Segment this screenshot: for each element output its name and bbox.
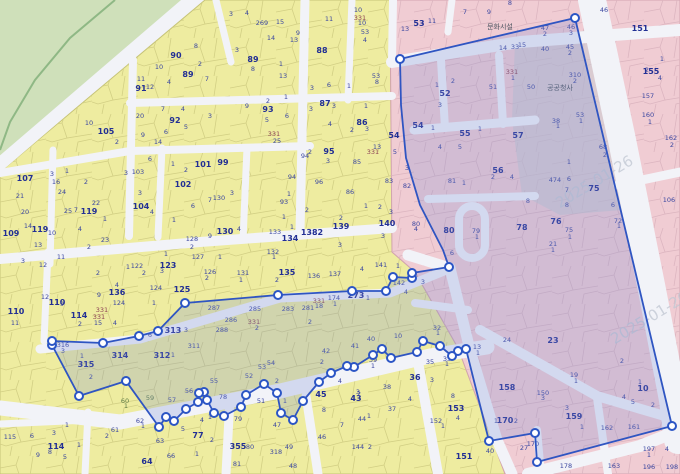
parcel-label: 134 — [282, 234, 299, 243]
selection-vertex[interactable] — [348, 287, 356, 295]
parcel-label: 2 — [205, 274, 209, 282]
parcel-label: 6 — [30, 432, 34, 440]
selection-vertex[interactable] — [445, 263, 453, 271]
parcel-label: 1 — [364, 202, 368, 210]
parcel-label: 1 — [152, 299, 156, 307]
selection-vertex[interactable] — [419, 337, 427, 345]
parcel-label: 10 — [85, 119, 93, 127]
parcel-label: 318 — [270, 448, 282, 456]
selection-vertex[interactable] — [315, 378, 323, 386]
parcel-label: 4 — [456, 414, 460, 422]
parcel-label: 1 — [172, 216, 176, 224]
parcel-label: 355 — [230, 442, 247, 451]
parcel-label: 4 — [237, 225, 241, 233]
selection-vertex[interactable] — [181, 299, 189, 307]
parcel-label: 1 — [164, 250, 168, 258]
parcel-label: 3 — [229, 10, 233, 18]
parcel-label: 2 — [275, 276, 279, 284]
parcel-label: 93 — [280, 198, 288, 206]
parcel-label: 10 — [354, 6, 362, 14]
parcel-label: 13 — [279, 72, 287, 80]
parcel-label: 104 — [133, 202, 150, 211]
selection-vertex[interactable] — [210, 409, 218, 417]
selection-vertex[interactable] — [155, 423, 163, 431]
parcel-label: 44 — [358, 415, 366, 423]
selection-vertex[interactable] — [260, 380, 268, 388]
parcel-label: 14 — [267, 34, 275, 42]
road — [300, 0, 305, 232]
parcel-label: 125 — [174, 285, 191, 294]
selection-vertex[interactable] — [170, 417, 178, 425]
parcel-label: 79 — [234, 415, 242, 423]
parcel-label: 15 — [276, 18, 284, 26]
parcel-label: 151 — [456, 452, 473, 461]
parcel-label: 2 — [308, 148, 312, 156]
parcel-label: 3 — [21, 257, 25, 265]
parcel-label: 1 — [396, 262, 400, 270]
parcel-label: 8 — [451, 392, 455, 400]
selection-vertex[interactable] — [413, 348, 421, 356]
selection-vertex[interactable] — [378, 345, 386, 353]
parcel-label: 1 — [648, 118, 652, 126]
parcel-label: 80 — [246, 443, 254, 451]
parcel-label: 163 — [608, 462, 620, 470]
parcel-label: 269 — [256, 19, 268, 27]
parcel-label: 88 — [316, 46, 328, 55]
parcel-label: 7 — [208, 196, 212, 204]
selection-vertex[interactable] — [485, 437, 493, 445]
parcel-label: 2 — [105, 432, 109, 440]
parcel-label: 128 — [186, 235, 198, 243]
parcel-label: 4 — [408, 395, 412, 403]
parcel-label: 109 — [3, 229, 20, 238]
selection-vertex[interactable] — [122, 377, 130, 385]
parcel-label: 13 — [290, 36, 298, 44]
parcel-label: 1 — [371, 362, 375, 370]
parcel-label: 96 — [315, 178, 323, 186]
parcel-label: 2 — [368, 443, 372, 451]
parcel-label: 46 — [600, 6, 608, 14]
parcel-label: 3 — [365, 125, 369, 133]
parcel-label: 53 — [413, 19, 424, 28]
map-svg[interactable]: 2025-01-262025-01-26 9089919210510281112… — [0, 0, 680, 474]
parcel-label: 3 — [160, 267, 164, 275]
parcel-label: 1 — [287, 190, 291, 198]
parcel-label: 92 — [169, 116, 180, 125]
parcel-label: 1 — [660, 55, 664, 63]
parcel-label: 11 — [428, 17, 436, 25]
parcel-label: 10 — [358, 19, 366, 27]
selection-vertex[interactable] — [533, 458, 541, 466]
selection-vertex[interactable] — [387, 354, 395, 362]
parcel-label: 2 — [645, 66, 649, 74]
parcel-label: 94 — [288, 173, 296, 181]
parcel-label: 9 — [60, 300, 64, 308]
parcel-label: 135 — [279, 268, 296, 277]
parcel-label: 2 — [305, 206, 309, 214]
parcel-label: 5 — [184, 123, 188, 131]
parcel-label: 49 — [285, 443, 293, 451]
parcel-label: 136 — [109, 288, 126, 297]
parcel-label: 9 — [208, 232, 212, 240]
selection-vertex[interactable] — [668, 422, 676, 430]
parcel-label: 8 — [194, 42, 198, 50]
parcel-label: 139 — [333, 222, 350, 231]
parcel-label: 25 — [64, 207, 72, 215]
parcel-label: 2 — [184, 166, 188, 174]
parcel-label: 46 — [318, 433, 326, 441]
parcel-label: 1 — [65, 167, 69, 175]
parcel-label: 89 — [182, 70, 194, 79]
parcel-label: 4 — [115, 281, 119, 289]
parcel-label: 89 — [247, 55, 259, 64]
road — [158, 148, 162, 237]
parcel-label: 99 — [217, 158, 229, 167]
parcel-label: 4 — [113, 319, 117, 327]
parcel-label: 133 — [269, 228, 281, 236]
parcel-label: 1382 — [301, 228, 323, 237]
parcel-label: 3 — [230, 189, 234, 197]
parcel-label: 1 — [290, 223, 294, 231]
parcel-label: 3 — [381, 232, 385, 240]
parcel-label: 1 — [218, 253, 222, 261]
parcel-label: 4 — [200, 416, 204, 424]
selection-vertex[interactable] — [220, 412, 228, 420]
selection-vertex[interactable] — [408, 269, 416, 277]
selection-vertex[interactable] — [369, 351, 377, 359]
parcel-label: 95 — [323, 147, 335, 156]
parcel-label: 2 — [84, 178, 88, 186]
parcel-label: 1 — [195, 450, 199, 458]
parcel-label: 127 — [192, 253, 204, 261]
selection-vertex[interactable] — [135, 332, 143, 340]
road — [243, 148, 247, 240]
parcel-label: 1 — [171, 160, 175, 168]
parcel-label: 35 — [426, 358, 434, 366]
selection-vertex[interactable] — [274, 291, 282, 299]
parcel-label: 77 — [192, 431, 203, 440]
selection-vertex[interactable] — [382, 287, 390, 295]
parcel-label: 1 — [367, 412, 371, 420]
parcel-label: 8 — [48, 448, 52, 456]
parcel-label: 21 — [16, 192, 24, 200]
parcel-label: 6 — [164, 128, 168, 136]
parcel-label: 85 — [353, 158, 361, 166]
parcel-label: 3 — [208, 112, 212, 120]
parcel-label: 1 — [77, 441, 81, 449]
parcel-label: 5 — [63, 453, 67, 461]
parcel-label: 2 — [378, 203, 382, 211]
selection-vertex[interactable] — [273, 389, 281, 397]
parcel-label: 107 — [17, 174, 34, 183]
selection-vertex[interactable] — [242, 391, 250, 399]
parcel-label: 1 — [65, 421, 69, 429]
selection-vertex[interactable] — [389, 273, 397, 281]
selection-vertex[interactable] — [327, 369, 335, 377]
selection-vertex[interactable] — [75, 392, 83, 400]
parcel-label: 1 — [364, 102, 368, 110]
parcel-label: 11 — [325, 15, 333, 23]
selection-vertex[interactable] — [203, 396, 211, 404]
selection-vertex[interactable] — [571, 14, 579, 22]
parcel-label: 1 — [272, 253, 276, 261]
parcel-label: 4 — [167, 78, 171, 86]
parcel-label: 124 — [150, 284, 162, 292]
selection-vertex[interactable] — [162, 413, 170, 421]
parcel-label: 140 — [379, 219, 396, 228]
parcel-label: 7 — [205, 75, 209, 83]
parcel-label: 16 — [52, 178, 60, 186]
parcel-label: 2 — [266, 97, 270, 105]
parcel-label: 114 — [71, 311, 88, 320]
facility-label: 문화시설 — [487, 23, 513, 31]
parcel-label: 2 — [198, 60, 202, 68]
parcel-label: 4 — [338, 377, 342, 385]
parcel-label: 141 — [375, 261, 387, 269]
parcel-label: 3 — [52, 429, 56, 437]
parcel-label: 14 — [154, 138, 162, 146]
road — [392, 0, 393, 62]
parcel-label: 5 — [181, 425, 185, 433]
selection-vertex[interactable] — [182, 405, 190, 413]
parcel-label: 1 — [124, 402, 128, 410]
parcel-label: 12 — [39, 261, 47, 269]
parcel-label: 20 — [21, 208, 29, 216]
parcel-label: 1 — [284, 93, 288, 101]
selection-vertex[interactable] — [343, 362, 351, 370]
selection-vertex[interactable] — [277, 409, 285, 417]
parcel-label: 3 — [138, 189, 142, 197]
parcel-label: 3 — [235, 46, 239, 54]
parcel-label: 4 — [665, 445, 669, 453]
parcel-label: 115 — [4, 433, 16, 441]
parcel-label: 3 — [430, 376, 434, 384]
parcel-label: 53 — [361, 28, 369, 36]
parcel-label: 9 — [487, 8, 491, 16]
parcel-label: 36 — [409, 373, 421, 382]
parcel-label: 90 — [170, 51, 182, 60]
parcel-label: 2 — [339, 214, 343, 222]
selection-vertex[interactable] — [154, 327, 162, 335]
selection-vertex[interactable] — [99, 339, 107, 347]
selection-vertex[interactable] — [531, 429, 539, 437]
parcel-label: 8 — [322, 406, 326, 414]
parcel-label: 2 — [115, 138, 119, 146]
parcel-label: 130 — [213, 194, 225, 202]
parcel-label: 23 — [101, 236, 109, 244]
selection-vertex[interactable] — [289, 416, 297, 424]
selection-vertex[interactable] — [396, 55, 404, 63]
parcel-label: 61 — [111, 426, 119, 434]
selection-vertex[interactable] — [462, 345, 470, 353]
parcel-label: 110 — [8, 307, 25, 316]
parcel-label: 7 — [74, 206, 78, 214]
parcel-label: 47 — [273, 421, 281, 429]
parcel-label: 119 — [81, 207, 98, 216]
parcel-label: 7 — [340, 421, 344, 429]
parcel-label: 3 — [389, 208, 393, 216]
parcel-label: 196 — [643, 463, 655, 471]
parcel-label: 24 — [58, 188, 66, 196]
parcel-label: 3 — [310, 84, 314, 92]
parcel-label: 157 — [642, 92, 654, 100]
parcel-label: 4 — [328, 120, 332, 128]
parcel-label: 40 — [486, 447, 494, 455]
selection-vertex[interactable] — [299, 397, 307, 405]
parcel-label: 54 — [388, 131, 400, 140]
parcel-label: 63 — [156, 437, 164, 445]
parcel-label: 8 — [375, 78, 379, 86]
parcel-label: 1 — [239, 276, 243, 284]
parcel-label: 4 — [181, 105, 185, 113]
parcel-label: 86 — [346, 188, 354, 196]
parcel-label: 4 — [150, 208, 154, 216]
parcel-label: 3 — [356, 388, 360, 396]
parcel-label: 12 — [146, 83, 154, 91]
parcel-label: 10 — [48, 229, 56, 237]
parcel-label: 1 — [647, 451, 651, 459]
parcel-label: 4 — [414, 225, 418, 233]
selection-vertex[interactable] — [436, 342, 444, 350]
parcel-label: 3 — [309, 105, 313, 113]
parcel-label: 103 — [132, 168, 144, 176]
parcel-label: 6 — [327, 81, 331, 89]
parcel-label: 51 — [257, 397, 265, 405]
parcel-label: 25 — [273, 137, 281, 145]
selection-vertex[interactable] — [194, 398, 202, 406]
parcel-label: 130 — [217, 227, 234, 236]
parcel-label: 9 — [245, 102, 249, 110]
parcel-label: 82 — [403, 182, 411, 190]
parcel-label: 5 — [265, 116, 269, 124]
parcel-label: 198 — [666, 463, 678, 471]
parcel-label: 7 — [161, 105, 165, 113]
parcel-label: 106 — [663, 196, 675, 204]
parcel-label: 45 — [315, 390, 327, 399]
parcel-label: 2 — [78, 320, 82, 328]
parcel-label: 10 — [155, 63, 163, 71]
parcel-label: 66 — [167, 452, 175, 460]
parcel-label: 1 — [347, 82, 351, 90]
parcel-label: 2 — [87, 243, 91, 251]
parcel-label: 1 — [441, 422, 445, 430]
parcel-label: 6 — [148, 155, 152, 163]
parcel-label: 153 — [448, 404, 465, 413]
parcel-label: 87 — [319, 99, 330, 108]
parcel-label: 2 — [96, 269, 100, 277]
parcel-label: 8 — [251, 65, 255, 73]
parcel-label: 5 — [393, 148, 397, 156]
parcel-label: 144 — [352, 443, 364, 451]
parcel-label: 7 — [463, 8, 467, 16]
parcel-label: 3 — [50, 170, 54, 178]
parcel-label: 1 — [282, 213, 286, 221]
parcel-label: 1 — [103, 215, 107, 223]
cadastral-map-view[interactable]: 2025-01-262025-01-26 9089919210510281112… — [0, 0, 680, 474]
parcel-label: 4 — [363, 36, 367, 44]
parcel-label: 11 — [137, 75, 145, 83]
parcel-label: 38 — [383, 383, 391, 391]
parcel-label: 6 — [285, 112, 289, 120]
parcel-label: 105 — [98, 127, 115, 136]
parcel-label: 8 — [508, 0, 512, 7]
parcel-label: 124 — [113, 299, 125, 307]
parcel-label: 93 — [262, 105, 273, 114]
parcel-label: 1 — [445, 360, 449, 368]
selection-vertex[interactable] — [237, 403, 245, 411]
parcel-label: 13 — [373, 143, 381, 151]
selection-vertex[interactable] — [195, 389, 203, 397]
parcel-label: 2 — [142, 269, 146, 277]
parcel-label: 3 — [124, 169, 128, 177]
parcel-label: 101 — [195, 160, 212, 169]
parcel-label: 4 — [360, 265, 364, 273]
parcel-label: 151 — [632, 24, 649, 33]
parcel-label: 4 — [78, 225, 82, 233]
parcel-label: 9 — [141, 131, 145, 139]
parcel-label: 2 — [350, 126, 354, 134]
parcel-label: 15 — [94, 319, 102, 327]
parcel-label: 2 — [190, 243, 194, 251]
parcel-label: 64 — [141, 457, 153, 466]
selection-vertex[interactable] — [48, 337, 56, 345]
parcel-label: 13 — [401, 25, 409, 33]
road — [50, 150, 53, 264]
parcel-label: 37 — [388, 405, 396, 413]
parcel-label: 22 — [92, 199, 100, 207]
parcel-label: 11 — [11, 319, 19, 327]
parcel-label: 13 — [34, 241, 42, 249]
parcel-label: 83 — [385, 177, 393, 185]
parcel-label: 1 — [126, 263, 130, 271]
parcel-label: 9 — [36, 451, 40, 459]
parcel-label: 2 — [210, 436, 214, 444]
parcel-label: 137 — [329, 270, 341, 278]
parcel-label: 3 — [338, 241, 342, 249]
parcel-label: 1 — [141, 422, 145, 430]
parcel-label: 4 — [658, 74, 662, 82]
parcel-label: 3 — [332, 102, 336, 110]
selection-vertex[interactable] — [448, 352, 456, 360]
parcel-label: 136 — [308, 272, 320, 280]
parcel-label: 119 — [32, 225, 49, 234]
parcel-label: 1 — [279, 60, 283, 68]
parcel-label: 48 — [289, 462, 297, 470]
road — [0, 420, 88, 424]
road — [448, 0, 452, 32]
parcel-label: 4 — [245, 9, 249, 17]
parcel-label: 2 — [670, 141, 674, 149]
parcel-label: 9 — [97, 291, 101, 299]
parcel-label: 11 — [57, 253, 65, 261]
parcel-label: 6 — [191, 202, 195, 210]
parcel-label: 178 — [560, 462, 572, 470]
parcel-label: 81 — [233, 460, 241, 468]
parcel-label: 102 — [175, 180, 192, 189]
parcel-label: 3 — [326, 157, 330, 165]
parcel-label: 20 — [136, 112, 144, 120]
